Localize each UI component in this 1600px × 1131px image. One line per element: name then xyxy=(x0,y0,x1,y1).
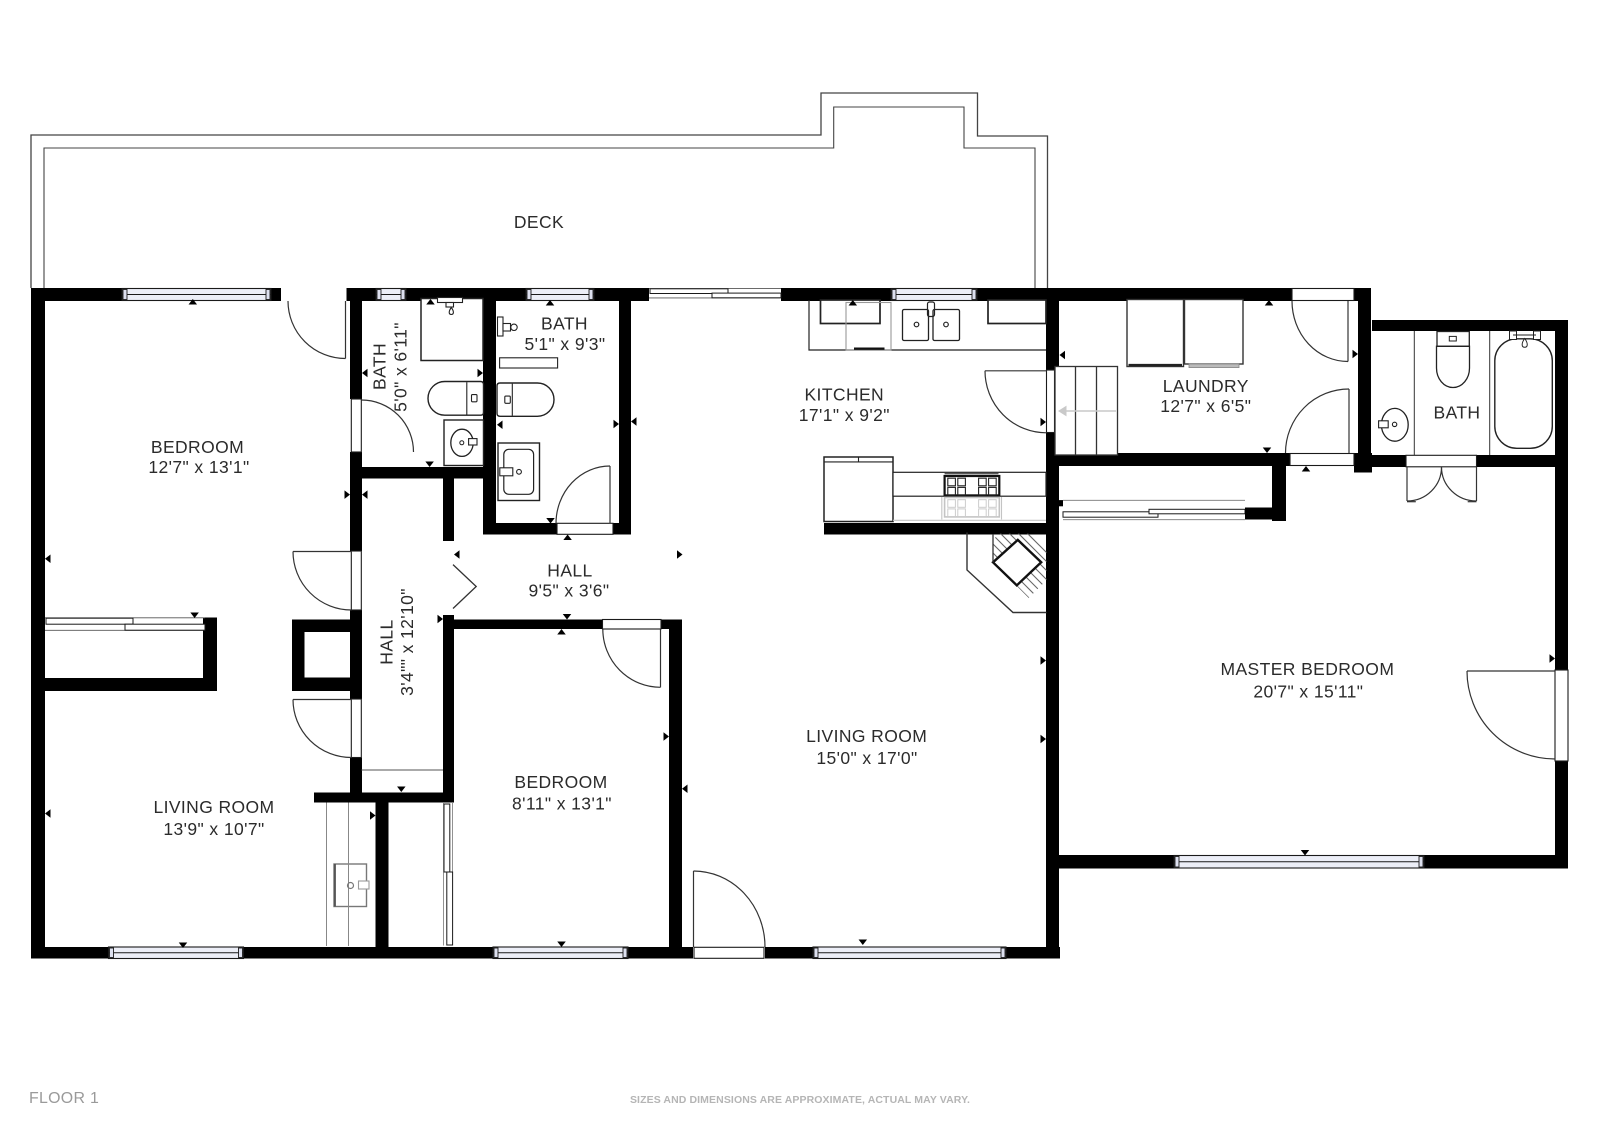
svg-text:13'9" x 10'7": 13'9" x 10'7" xyxy=(163,819,264,839)
svg-text:17'1" x 9'2": 17'1" x 9'2" xyxy=(799,405,890,425)
svg-text:KITCHEN: KITCHEN xyxy=(804,385,884,405)
svg-text:15'0" x 17'0": 15'0" x 17'0" xyxy=(816,748,917,768)
svg-text:FLOOR 1: FLOOR 1 xyxy=(29,1090,99,1107)
svg-text:8'11" x 13'1": 8'11" x 13'1" xyxy=(512,794,612,814)
svg-text:LIVING ROOM: LIVING ROOM xyxy=(806,726,927,746)
svg-text:HALL: HALL xyxy=(547,561,592,581)
svg-text:5'1" x 9'3": 5'1" x 9'3" xyxy=(525,334,606,354)
svg-text:LAUNDRY: LAUNDRY xyxy=(1163,376,1249,396)
svg-text:20'7" x 15'11": 20'7" x 15'11" xyxy=(1253,682,1363,702)
svg-text:BATH: BATH xyxy=(369,343,389,390)
svg-text:BEDROOM: BEDROOM xyxy=(151,437,244,457)
svg-text:MASTER BEDROOM: MASTER BEDROOM xyxy=(1220,659,1394,679)
svg-text:BATH: BATH xyxy=(1434,403,1481,423)
svg-text:9'5" x 3'6": 9'5" x 3'6" xyxy=(529,581,610,601)
svg-text:BATH: BATH xyxy=(541,314,588,334)
svg-text:HALL: HALL xyxy=(377,619,397,664)
svg-text:BEDROOM: BEDROOM xyxy=(514,772,607,792)
svg-text:12'7" x 6'5": 12'7" x 6'5" xyxy=(1160,396,1251,416)
svg-text:SIZES AND DIMENSIONS ARE APPRO: SIZES AND DIMENSIONS ARE APPROXIMATE, AC… xyxy=(630,1094,970,1106)
svg-text:12'7" x 13'1": 12'7" x 13'1" xyxy=(148,457,249,477)
svg-text:3'4"" x 12'10": 3'4"" x 12'10" xyxy=(397,588,417,696)
svg-text:LIVING ROOM: LIVING ROOM xyxy=(153,797,274,817)
svg-text:5'0" x 6'11": 5'0" x 6'11" xyxy=(391,322,411,412)
svg-text:DECK: DECK xyxy=(514,212,564,232)
